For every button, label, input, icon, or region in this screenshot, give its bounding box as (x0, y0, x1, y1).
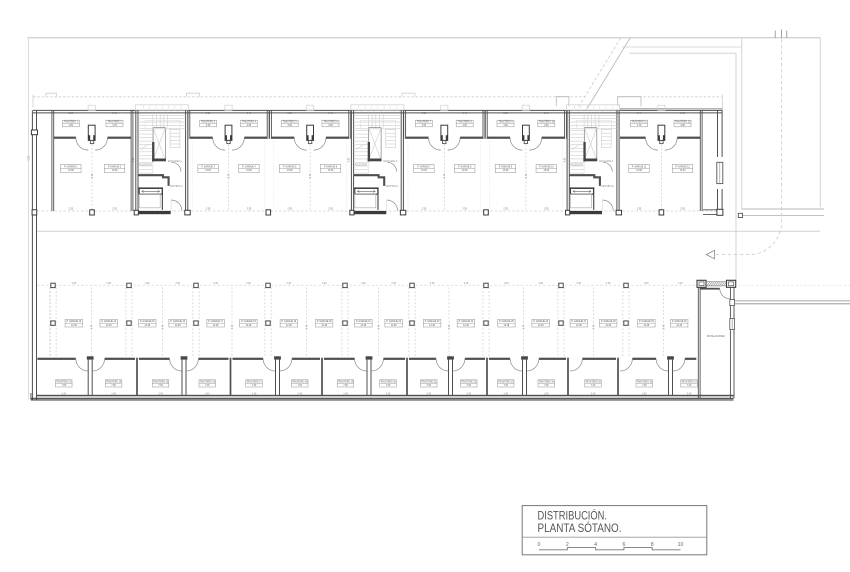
svg-text:VESTIBULO: VESTIBULO (170, 186, 183, 188)
svg-text:2.35: 2.35 (680, 113, 685, 115)
svg-text:2.40: 2.40 (213, 283, 218, 285)
svg-text:12.48: 12.48 (463, 325, 469, 327)
svg-text:2.70: 2.70 (228, 173, 230, 178)
svg-text:2.35: 2.35 (206, 209, 211, 211)
svg-text:2.40: 2.40 (463, 113, 468, 115)
svg-text:13.08: 13.08 (112, 170, 118, 172)
svg-text:2.40: 2.40 (392, 283, 397, 285)
svg-text:2.40: 2.40 (464, 283, 469, 285)
svg-text:2.40: 2.40 (162, 324, 164, 329)
svg-text:12.48: 12.48 (321, 325, 327, 327)
svg-text:13.06: 13.06 (462, 170, 468, 172)
svg-text:4.50: 4.50 (544, 125, 549, 127)
svg-text:4.50: 4.50 (288, 125, 293, 127)
svg-text:12.48: 12.48 (538, 325, 544, 327)
svg-text:2.35: 2.35 (463, 209, 468, 211)
svg-text:7.00: 7.00 (298, 385, 303, 387)
svg-text:2.40: 2.40 (378, 324, 380, 329)
svg-text:6: 6 (622, 542, 625, 548)
svg-text:2.35: 2.35 (288, 113, 293, 115)
svg-text:4.75: 4.75 (112, 125, 117, 127)
svg-text:2: 2 (566, 542, 569, 548)
svg-text:2.40: 2.40 (112, 113, 117, 115)
svg-text:2.35: 2.35 (422, 209, 427, 211)
svg-text:2.40: 2.40 (176, 283, 181, 285)
svg-text:2.35: 2.35 (288, 209, 293, 211)
svg-text:2.70: 2.70 (444, 173, 446, 178)
svg-text:12.48: 12.48 (246, 325, 252, 327)
svg-text:2.35: 2.35 (247, 209, 252, 211)
svg-text:2.40: 2.40 (322, 283, 327, 285)
svg-text:VESTIBULO: VESTIBULO (601, 186, 614, 188)
svg-text:2.35: 2.35 (69, 113, 74, 115)
svg-text:12.48: 12.48 (676, 325, 682, 327)
svg-text:4.50: 4.50 (247, 125, 252, 127)
svg-text:2.35: 2.35 (422, 113, 427, 115)
svg-text:13.06: 13.06 (421, 170, 427, 172)
svg-text:13.06: 13.06 (246, 170, 252, 172)
svg-text:2.35: 2.35 (637, 209, 642, 211)
svg-text:12.48: 12.48 (144, 325, 150, 327)
svg-text:4.70: 4.70 (637, 125, 642, 127)
svg-text:13.06: 13.06 (543, 170, 549, 172)
svg-text:8: 8 (651, 542, 654, 548)
svg-text:2.40: 2.40 (577, 283, 582, 285)
svg-text:2.40: 2.40 (287, 283, 292, 285)
svg-text:2.40: 2.40 (145, 283, 150, 285)
svg-text:7.00: 7.00 (642, 385, 647, 387)
svg-text:2.35: 2.35 (503, 209, 508, 211)
svg-text:13.08: 13.08 (68, 170, 74, 172)
svg-text:2.40: 2.40 (544, 113, 549, 115)
svg-text:7.00: 7.00 (62, 385, 67, 387)
svg-text:7.00: 7.00 (386, 385, 391, 387)
svg-text:12.48: 12.48 (106, 325, 112, 327)
svg-text:13.08: 13.08 (636, 170, 642, 172)
svg-text:2.40: 2.40 (232, 324, 234, 329)
svg-text:2.40: 2.40 (504, 283, 509, 285)
svg-text:2.35: 2.35 (112, 209, 117, 211)
svg-text:12.48: 12.48 (391, 325, 397, 327)
svg-text:2.46: 2.46 (637, 113, 642, 115)
svg-text:2.40: 2.40 (663, 324, 665, 329)
svg-text:2.35: 2.35 (328, 209, 333, 211)
svg-text:2.40: 2.40 (539, 283, 544, 285)
svg-text:4: 4 (594, 542, 597, 548)
svg-text:7.00: 7.00 (158, 385, 163, 387)
svg-text:2.40: 2.40 (523, 324, 525, 329)
svg-text:2.40: 2.40 (247, 113, 252, 115)
svg-text:7.00: 7.00 (343, 385, 348, 387)
svg-text:12.48: 12.48 (71, 325, 77, 327)
svg-text:13.06: 13.06 (328, 170, 334, 172)
svg-text:2.70: 2.70 (92, 173, 94, 178)
svg-text:7.00: 7.00 (467, 385, 472, 387)
svg-text:7.00: 7.00 (205, 385, 210, 387)
svg-text:4.50: 4.50 (422, 125, 427, 127)
svg-text:4.50: 4.50 (206, 125, 211, 127)
svg-text:2.40: 2.40 (678, 283, 683, 285)
svg-text:2.62: 2.62 (349, 157, 351, 162)
svg-text:2.70: 2.70 (310, 173, 312, 178)
svg-text:2.40: 2.40 (72, 283, 77, 285)
svg-text:2.70: 2.70 (526, 173, 528, 178)
svg-text:2.40: 2.40 (328, 113, 333, 115)
svg-text:13.06: 13.06 (287, 170, 293, 172)
svg-text:2.40: 2.40 (430, 283, 435, 285)
svg-text:7.00: 7.00 (427, 385, 432, 387)
svg-text:2.40: 2.40 (361, 283, 366, 285)
svg-text:12.48: 12.48 (361, 325, 367, 327)
svg-text:2.40: 2.40 (246, 283, 251, 285)
svg-text:12.48: 12.48 (213, 325, 219, 327)
svg-text:2.35: 2.35 (503, 113, 508, 115)
svg-text:2.40: 2.40 (606, 283, 611, 285)
svg-text:12.48: 12.48 (576, 325, 582, 327)
svg-text:7.00: 7.00 (687, 385, 692, 387)
svg-text:4.80: 4.80 (680, 125, 685, 127)
svg-text:10: 10 (678, 542, 684, 548)
svg-text:0: 0 (538, 542, 541, 548)
svg-text:4.50: 4.50 (503, 125, 508, 127)
svg-text:2.35: 2.35 (544, 209, 549, 211)
svg-text:2.35: 2.35 (69, 209, 74, 211)
svg-text:2.62: 2.62 (564, 157, 566, 162)
svg-text:2.40: 2.40 (593, 324, 595, 329)
svg-text:2.62: 2.62 (133, 157, 135, 162)
svg-text:12.48: 12.48 (286, 325, 292, 327)
svg-text:2.40: 2.40 (449, 324, 451, 329)
svg-text:2.35: 2.35 (206, 113, 211, 115)
svg-text:12.48: 12.48 (504, 325, 510, 327)
svg-text:4.80: 4.80 (69, 125, 74, 127)
svg-text:13.06: 13.06 (205, 170, 211, 172)
svg-text:14.40: 14.40 (680, 170, 686, 172)
svg-text:PLANTA SÓTANO.: PLANTA SÓTANO. (538, 520, 622, 535)
svg-text:2.40: 2.40 (306, 324, 308, 329)
svg-text:VESTIBULO: VESTIBULO (386, 186, 399, 188)
svg-text:12.48: 12.48 (429, 325, 435, 327)
svg-text:2.40: 2.40 (644, 283, 649, 285)
svg-text:13.06: 13.06 (503, 170, 509, 172)
svg-text:7.00: 7.00 (252, 385, 257, 387)
svg-text:12.48: 12.48 (605, 325, 611, 327)
svg-text:12.48: 12.48 (175, 325, 181, 327)
svg-text:2.35: 2.35 (680, 209, 685, 211)
svg-text:4.50: 4.50 (463, 125, 468, 127)
svg-text:7.00: 7.00 (591, 385, 596, 387)
svg-text:12.48: 12.48 (644, 325, 650, 327)
svg-text:2.40: 2.40 (107, 283, 112, 285)
svg-text:4.50: 4.50 (328, 125, 333, 127)
svg-text:7.00: 7.00 (111, 385, 116, 387)
svg-text:7.00: 7.00 (504, 385, 509, 387)
svg-text:7.00: 7.00 (544, 385, 549, 387)
svg-text:2.40: 2.40 (91, 324, 93, 329)
